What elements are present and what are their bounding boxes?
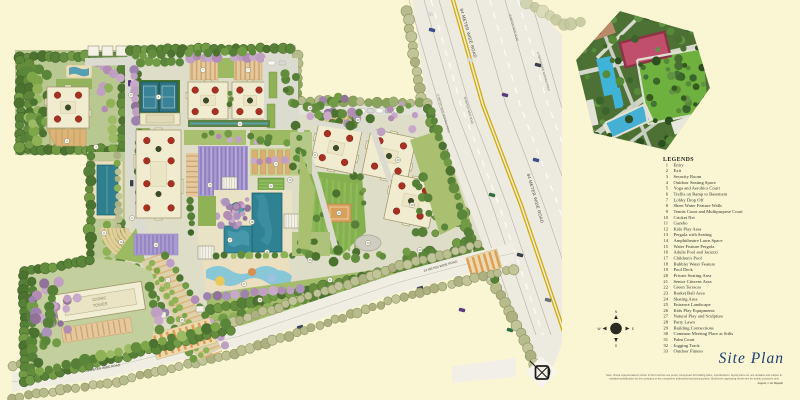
- svg-text:Outdoor Seating Space: Outdoor Seating Space: [674, 180, 716, 185]
- svg-text:22: 22: [663, 285, 668, 290]
- svg-text:Kids Play Equipments: Kids Play Equipments: [674, 308, 715, 313]
- svg-text:15: 15: [663, 244, 668, 249]
- svg-text:variation/modification by the: variation/modification by the company or…: [609, 378, 780, 381]
- svg-text:Basket Ball Area: Basket Ball Area: [674, 290, 705, 295]
- svg-text:Natural Play and Sculpture: Natural Play and Sculpture: [674, 314, 724, 319]
- svg-text:Building Connections: Building Connections: [674, 325, 714, 330]
- svg-text:32: 32: [663, 343, 668, 348]
- svg-text:14: 14: [663, 238, 668, 243]
- svg-text:16: 16: [663, 250, 668, 255]
- svg-text:Note: Visual representations s: Note: Visual representations shown in th…: [606, 374, 783, 377]
- svg-text:W: W: [597, 327, 600, 331]
- svg-text:13: 13: [663, 232, 668, 237]
- svg-text:31: 31: [663, 337, 668, 342]
- svg-text:E: E: [632, 327, 634, 331]
- svg-text:Site Plan: Site Plan: [719, 350, 784, 367]
- svg-text:23: 23: [663, 290, 668, 295]
- svg-text:28: 28: [663, 320, 668, 325]
- svg-text:Yoga and Aerobics Court: Yoga and Aerobics Court: [674, 186, 721, 191]
- svg-text:Water Feature Pergola: Water Feature Pergola: [674, 244, 715, 249]
- svg-text:Amphitheatre Lawn Space: Amphitheatre Lawn Space: [674, 238, 723, 243]
- svg-text:Green Terraces: Green Terraces: [674, 285, 702, 290]
- svg-text:Adults Pool and Jacuzzi: Adults Pool and Jacuzzi: [674, 250, 719, 255]
- svg-text:August, v 1st Repaph: August, v 1st Repaph: [757, 382, 783, 385]
- svg-text:Party Lawn: Party Lawn: [674, 320, 696, 325]
- svg-text:Private Seating Area: Private Seating Area: [674, 273, 712, 278]
- svg-text:12: 12: [663, 226, 668, 231]
- svg-text:Bubbler Water Feature: Bubbler Water Feature: [674, 261, 716, 266]
- svg-text:Jogging Track: Jogging Track: [674, 343, 701, 348]
- svg-text:Senior Citizens Area: Senior Citizens Area: [674, 279, 712, 284]
- svg-text:11: 11: [664, 221, 669, 226]
- svg-text:26: 26: [663, 308, 668, 313]
- svg-text:10: 10: [663, 215, 668, 220]
- svg-text:Tennis Court and Multipurpose: Tennis Court and Multipurpose Court: [674, 209, 744, 214]
- svg-text:19: 19: [663, 267, 668, 272]
- svg-text:Lobby Drop Off: Lobby Drop Off: [674, 197, 704, 202]
- svg-text:Trellis on Ramp to Basement: Trellis on Ramp to Basement: [674, 192, 728, 197]
- svg-text:29: 29: [663, 325, 668, 330]
- svg-text:20: 20: [663, 273, 668, 278]
- svg-text:Gazebo: Gazebo: [674, 221, 689, 226]
- svg-text:Exit: Exit: [674, 168, 682, 173]
- svg-text:Common Meeting Place at Stilts: Common Meeting Place at Stilts: [674, 331, 734, 336]
- svg-text:Children's Pool: Children's Pool: [674, 256, 703, 261]
- svg-text:30: 30: [663, 331, 668, 336]
- svg-text:Entrance Landscape: Entrance Landscape: [674, 302, 711, 307]
- svg-text:Cricket Net: Cricket Net: [674, 215, 696, 220]
- svg-text:Entry: Entry: [674, 162, 685, 167]
- svg-text:33: 33: [663, 349, 668, 354]
- svg-text:21: 21: [663, 279, 668, 284]
- svg-text:24: 24: [663, 296, 668, 301]
- svg-text:Pool Deck: Pool Deck: [674, 267, 694, 272]
- svg-text:Sheet Water Feature Walls: Sheet Water Feature Walls: [674, 203, 723, 208]
- svg-text:17: 17: [663, 256, 668, 261]
- svg-text:Security Room: Security Room: [674, 174, 702, 179]
- svg-text:Outdoor Fitness: Outdoor Fitness: [674, 349, 704, 354]
- svg-text:Skating Area: Skating Area: [674, 296, 698, 301]
- svg-text:25: 25: [663, 302, 668, 307]
- svg-text:27: 27: [663, 314, 668, 319]
- svg-text:Palm Court: Palm Court: [674, 337, 696, 342]
- svg-text:Pergola with Seating: Pergola with Seating: [674, 232, 713, 237]
- svg-text:Kids Play Area: Kids Play Area: [674, 226, 702, 231]
- svg-text:S: S: [615, 344, 617, 348]
- svg-text:18: 18: [663, 261, 668, 266]
